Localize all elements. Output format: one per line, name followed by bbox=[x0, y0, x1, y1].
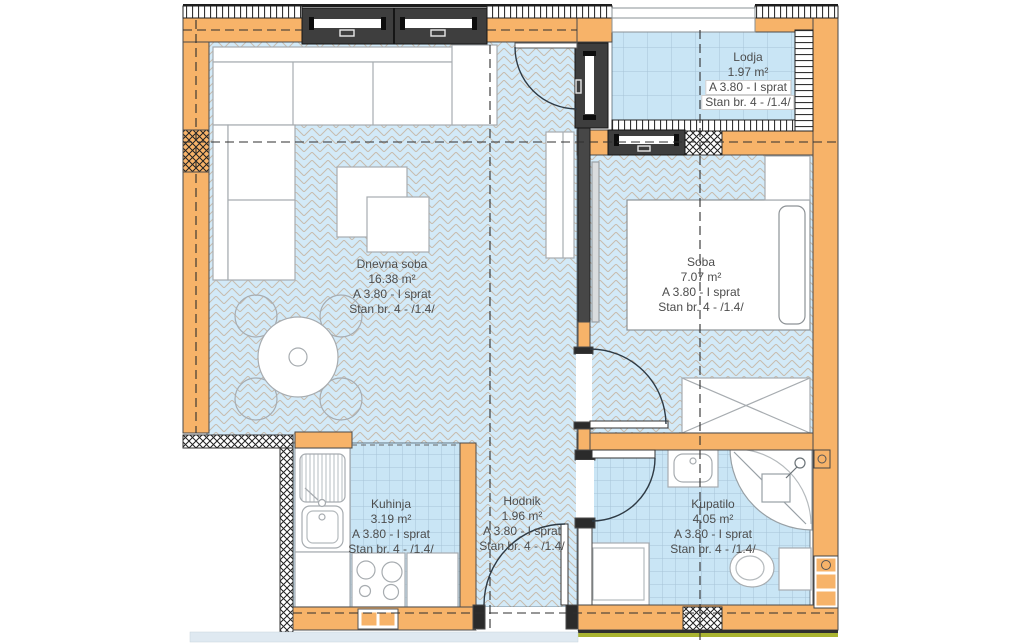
room-area: 16.38 m² bbox=[349, 272, 434, 287]
room-area: 7.07 m² bbox=[658, 270, 743, 285]
room-label-lodja: Lodja 1.97 m² A 3.80 - I sprat Stan br. … bbox=[701, 50, 794, 110]
wardrobe bbox=[682, 378, 810, 433]
right-exterior-wall bbox=[813, 18, 838, 630]
room-label-hodnik: Hodnik 1.96 m² A 3.80 - I sprat Stan br.… bbox=[479, 494, 564, 554]
bedroom-partition-dark bbox=[578, 128, 590, 324]
tall-cabinet bbox=[546, 132, 574, 258]
entrance-door-post bbox=[473, 605, 485, 629]
room-floor-line: A 3.80 - I sprat bbox=[348, 527, 433, 542]
bottom-edge-line bbox=[578, 630, 838, 633]
side-table bbox=[452, 45, 497, 125]
coffee-table-small bbox=[367, 197, 429, 252]
parapet-band bbox=[755, 6, 838, 18]
room-label-soba: Soba 7.07 m² A 3.80 - I sprat Stan br. 4… bbox=[658, 255, 743, 315]
room-unit-line: Stan br. 4 - /1.4/ bbox=[701, 95, 794, 110]
room-name: Kuhinja bbox=[348, 497, 433, 512]
door-post bbox=[574, 347, 593, 354]
room-unit-line: Stan br. 4 - /1.4/ bbox=[348, 542, 433, 557]
floor-plan-page: Dnevna soba 16.38 m² A 3.80 - I sprat St… bbox=[0, 0, 1024, 644]
room-floor-line: A 3.80 - I sprat bbox=[670, 527, 755, 542]
room-floor-line: A 3.80 - I sprat bbox=[479, 524, 564, 539]
balcony-door-top-stub bbox=[577, 18, 612, 42]
room-unit-line: Stan br. 4 - /1.4/ bbox=[349, 302, 434, 317]
nightstand bbox=[765, 156, 810, 200]
washing-machine bbox=[588, 543, 649, 605]
room-name: Lodja bbox=[701, 50, 794, 65]
room-name: Hodnik bbox=[479, 494, 564, 509]
bathroom-door-opening bbox=[576, 460, 594, 518]
room-area: 4.05 m² bbox=[670, 512, 755, 527]
room-label-kupatilo: Kupatilo 4.05 m² A 3.80 - I sprat Stan b… bbox=[670, 497, 755, 557]
room-area: 1.96 m² bbox=[479, 509, 564, 524]
entrance-threshold bbox=[476, 607, 578, 630]
bottom-pale-band bbox=[190, 632, 578, 642]
radiator bbox=[592, 162, 599, 322]
bathroom-shaft bbox=[814, 556, 838, 608]
room-area: 1.97 m² bbox=[701, 65, 794, 80]
kitchen-sink-unit bbox=[295, 448, 350, 552]
room-floor-line: A 3.80 - I sprat bbox=[705, 80, 791, 95]
stove bbox=[352, 553, 405, 607]
washbasin bbox=[668, 449, 718, 487]
room-floor-line: A 3.80 - I sprat bbox=[658, 285, 743, 300]
room-floor-line: A 3.80 - I sprat bbox=[349, 287, 434, 302]
living-room-window bbox=[302, 8, 487, 44]
room-unit-line: Stan br. 4 - /1.4/ bbox=[658, 300, 743, 315]
room-name: Dnevna soba bbox=[349, 257, 434, 272]
room-label-kuhinja: Kuhinja 3.19 m² A 3.80 - I sprat Stan br… bbox=[348, 497, 433, 557]
entrance-door-post bbox=[566, 605, 578, 629]
room-area: 3.19 m² bbox=[348, 512, 433, 527]
pillow bbox=[779, 206, 805, 324]
room-unit-line: Stan br. 4 - /1.4/ bbox=[670, 542, 755, 557]
loggia-railing-right bbox=[795, 30, 813, 131]
parapet-band bbox=[183, 6, 302, 18]
loggia-glass-railing bbox=[612, 8, 755, 32]
grass-line bbox=[578, 633, 838, 637]
bedroom-partition-orange-low bbox=[578, 429, 590, 450]
bedroom-bathroom-wall bbox=[577, 433, 813, 450]
kitchen-counter-right bbox=[407, 553, 458, 607]
faucet bbox=[319, 500, 326, 507]
kitchen-top-stub bbox=[295, 432, 352, 448]
loggia-railing-bottom bbox=[612, 120, 795, 131]
room-label-dnevna-soba: Dnevna soba 16.38 m² A 3.80 - I sprat St… bbox=[349, 257, 434, 317]
bathroom-duct-top bbox=[814, 450, 830, 468]
bathroom-cabinet bbox=[779, 548, 811, 590]
parapet-band bbox=[487, 6, 612, 18]
kitchen-counter bbox=[295, 552, 350, 607]
kitchen-hall-wall bbox=[460, 443, 476, 607]
kitchen-shaft bbox=[358, 609, 398, 629]
room-name: Soba bbox=[658, 255, 743, 270]
room-name: Kupatilo bbox=[670, 497, 755, 512]
bedroom-door-opening bbox=[576, 354, 592, 422]
room-unit-line: Stan br. 4 - /1.4/ bbox=[479, 539, 564, 554]
door-post bbox=[575, 518, 595, 528]
balcony-door bbox=[575, 43, 608, 128]
dining-table-center bbox=[289, 348, 307, 366]
